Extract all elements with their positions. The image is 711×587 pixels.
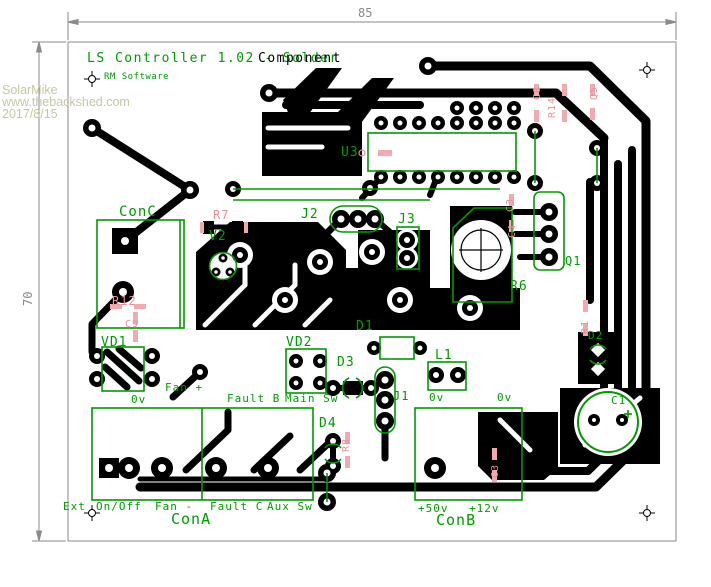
silk-label-on-off: On/Off <box>96 501 142 512</box>
silk-label-0v: 0v <box>497 392 512 403</box>
silk-label-j2: J2 <box>301 208 319 221</box>
silk-label-d1: D1 <box>356 320 374 333</box>
silk-label-cona: ConA <box>171 512 211 527</box>
silk-label-j3: J3 <box>398 213 416 226</box>
silk-label-vd2: VD2 <box>286 336 312 349</box>
watermark-date: 2017/8/15 <box>2 108 58 121</box>
silk-label-v2: V2 <box>209 230 227 243</box>
silk-label-ext: Ext <box>63 501 86 512</box>
ref-label-c4: C4 <box>508 224 518 238</box>
crosshair-icon <box>639 505 655 521</box>
crosshair-icon <box>639 62 655 78</box>
dimension-height-label: 70 <box>22 292 34 306</box>
silk-label-q1: Q1 <box>565 255 581 267</box>
pcb-layout-viewer: LS Controller 1.02 - Solder Component RM… <box>0 0 711 587</box>
ref-label-c9: C9 <box>125 320 139 330</box>
silk-label-0v: 0v <box>429 392 444 403</box>
software-credit: RM Software <box>104 73 169 82</box>
silk-label-0v: 0v <box>131 394 146 405</box>
ref-label-r12: R12 <box>112 295 137 307</box>
silk-label-d4: D4 <box>319 417 337 430</box>
ref-label-c3: C3 <box>506 198 516 212</box>
silk-label-d3: D3 <box>337 356 355 369</box>
silk-label-r6: R6 <box>510 280 528 293</box>
ref-label-r8: R8 <box>342 438 352 452</box>
silk-label-conc: ConC <box>119 205 157 219</box>
silk-label-u3: U3 <box>341 146 359 159</box>
silk-label-l1: L1 <box>435 349 453 362</box>
copper-traces <box>83 57 660 511</box>
ref-label-r14: R14 <box>548 97 558 118</box>
crosshair-icon <box>84 71 100 87</box>
ref-label-c3: C3 <box>491 464 501 478</box>
ref-label-r1: R1 <box>581 320 591 334</box>
silk-label-fault-b: Fault B <box>227 393 280 404</box>
pcb-artwork <box>0 0 711 587</box>
dimension-width-label: 85 <box>358 7 372 19</box>
layer-title-component: Component <box>258 52 342 65</box>
silk-label-main-sw: Main Sw <box>285 393 338 404</box>
silk-label-aux-sw: Aux Sw <box>267 501 313 512</box>
silk-label-j1: J1 <box>393 390 409 402</box>
silk-label-vd1: VD1 <box>101 336 127 349</box>
silk-label-fan-+: Fan + <box>165 382 203 393</box>
ref-label-c8: C8 <box>533 86 543 100</box>
ref-label-r7: R7 <box>213 209 229 221</box>
ref-label-q5: Q5 <box>590 86 600 100</box>
silk-label-c1: C1 <box>611 395 626 406</box>
silk-label-conb: ConB <box>436 513 476 528</box>
silk-label-fault-c: Fault C <box>210 501 263 512</box>
